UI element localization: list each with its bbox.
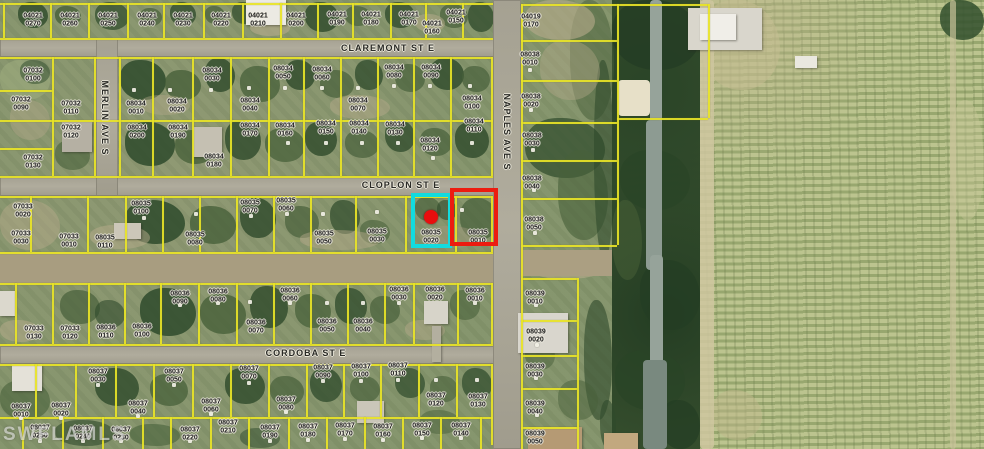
street-name-label: CLAREMONT ST E <box>341 43 435 53</box>
watermark: SWFLAMLS <box>3 424 127 446</box>
subject-location-marker <box>424 210 438 224</box>
aerial-parcel-map: 0402102700402102600402102500402102400402… <box>0 0 984 449</box>
street-name-label: NAPLES AVE S <box>502 93 512 170</box>
street-name-label: MERLIN AVE S <box>100 80 110 155</box>
adjacent-parcel-highlight <box>450 188 498 246</box>
street-name-label: CORDOBA ST E <box>266 348 347 358</box>
street-name-label: CLOPLON ST E <box>362 180 441 190</box>
